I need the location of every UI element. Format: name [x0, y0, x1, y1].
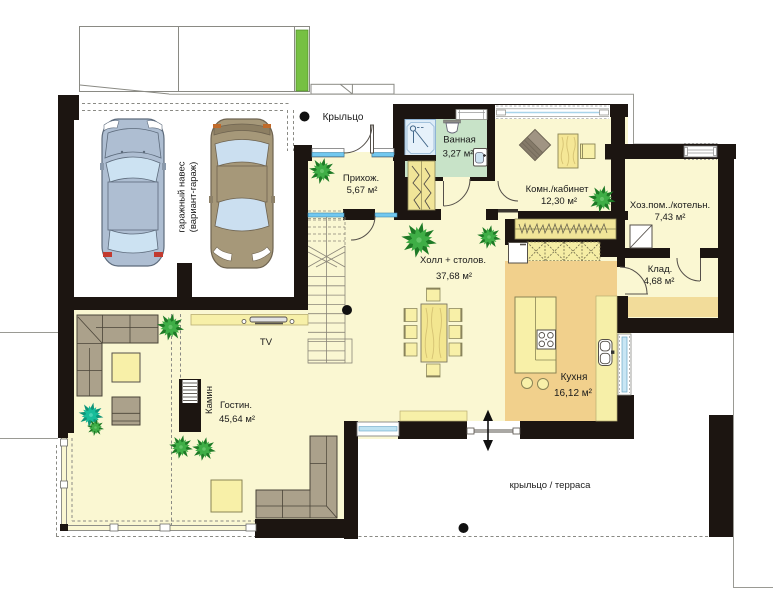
svg-text:Ванная: Ванная	[443, 135, 476, 146]
svg-text:7,43 м²: 7,43 м²	[655, 212, 686, 223]
svg-text:3,27 м²: 3,27 м²	[443, 149, 474, 160]
svg-text:(вариант-гараж): (вариант-гараж)	[188, 162, 199, 233]
svg-text:12,30 м²: 12,30 м²	[541, 196, 577, 207]
svg-text:Комн./кабинет: Комн./кабинет	[526, 184, 589, 195]
svg-text:Кухня: Кухня	[561, 372, 588, 383]
svg-text:Крыльцо: Крыльцо	[323, 112, 364, 123]
svg-text:45,64 м²: 45,64 м²	[219, 414, 255, 425]
svg-text:Клад.: Клад.	[648, 264, 673, 275]
svg-text:TV: TV	[260, 337, 273, 348]
svg-text:16,12 м²: 16,12 м²	[554, 388, 593, 399]
svg-text:Холл + столов.: Холл + столов.	[420, 255, 486, 266]
svg-text:5,67 м²: 5,67 м²	[347, 185, 378, 196]
svg-text:крыльцо / терраса: крыльцо / терраса	[510, 480, 591, 491]
svg-text:гаражный навес: гаражный навес	[177, 161, 188, 232]
svg-text:Хоз.пом../котельн.: Хоз.пом../котельн.	[630, 200, 710, 211]
svg-text:4,68 м²: 4,68 м²	[644, 276, 675, 287]
svg-text:Камин: Камин	[204, 386, 215, 414]
svg-text:Гостин.: Гостин.	[220, 400, 252, 411]
svg-text:Прихож.: Прихож.	[343, 173, 379, 184]
svg-text:37,68 м²: 37,68 м²	[436, 271, 472, 282]
